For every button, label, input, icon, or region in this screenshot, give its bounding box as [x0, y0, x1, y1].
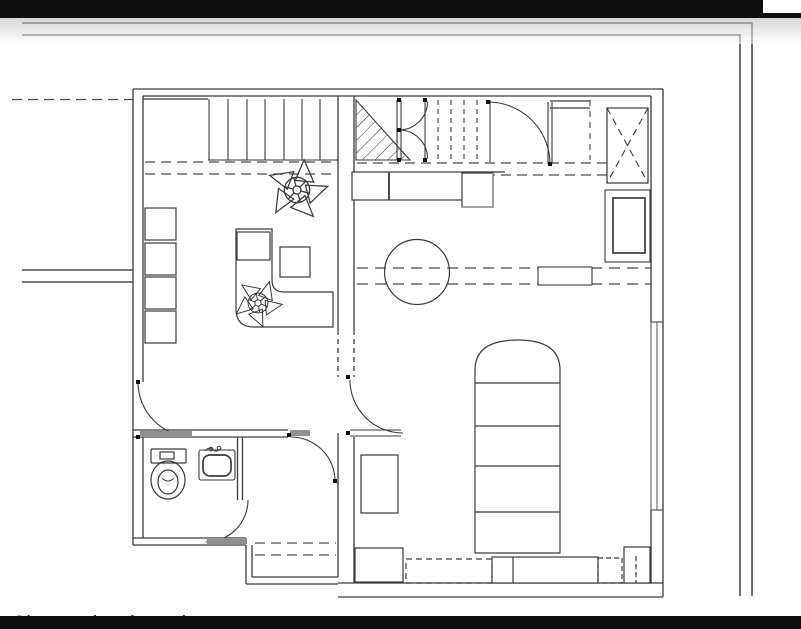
bedroom-door-leaf [350, 430, 401, 436]
office-door-arc [138, 382, 193, 437]
bottom-black-bar [0, 616, 801, 629]
floor-plan-screenshot: ©/ Fernandes Pimentel [0, 0, 801, 629]
floor-plan-drawing: ©/ Fernandes Pimentel [0, 0, 801, 629]
staircase-right-dashed [425, 100, 490, 162]
interior-wall-piece [550, 101, 590, 108]
round-table [385, 240, 450, 305]
nightstand [361, 455, 398, 513]
left-wall [133, 89, 143, 545]
party-wall-stub-lines [22, 270, 133, 282]
bed [475, 340, 560, 553]
hall-step-wall [246, 545, 252, 584]
bathroom-door-arc [206, 500, 248, 542]
plant-icon [260, 152, 333, 226]
shelf-column [145, 208, 176, 343]
toilet [151, 449, 186, 499]
bedroom-door-arc [350, 380, 403, 433]
top-bar-notch [763, 0, 801, 13]
door-thresholds [140, 430, 310, 544]
elevator-shaft [590, 100, 648, 183]
walls [133, 89, 663, 597]
beam-box [538, 267, 592, 285]
shared-wall [338, 96, 354, 583]
shared-wall-dashed-opening [338, 330, 354, 377]
left-unit-bottom-wall [246, 577, 338, 584]
top-black-bar [0, 0, 801, 18]
top-bar-shadow [0, 18, 801, 44]
staircase-left [208, 99, 338, 160]
right-unit-bottom-wall [338, 583, 663, 597]
tall-cabinet [605, 190, 650, 262]
bathroom-partition [238, 437, 243, 500]
hall-door-arc [291, 437, 335, 481]
kitchen-appliance [462, 173, 493, 207]
plant-icon [224, 270, 290, 336]
desk-stools [237, 232, 310, 277]
kitchen-counter [352, 172, 505, 207]
entry-door [488, 102, 552, 164]
window-right-wall [651, 322, 663, 510]
sink [199, 446, 235, 480]
top-wall [133, 89, 663, 96]
